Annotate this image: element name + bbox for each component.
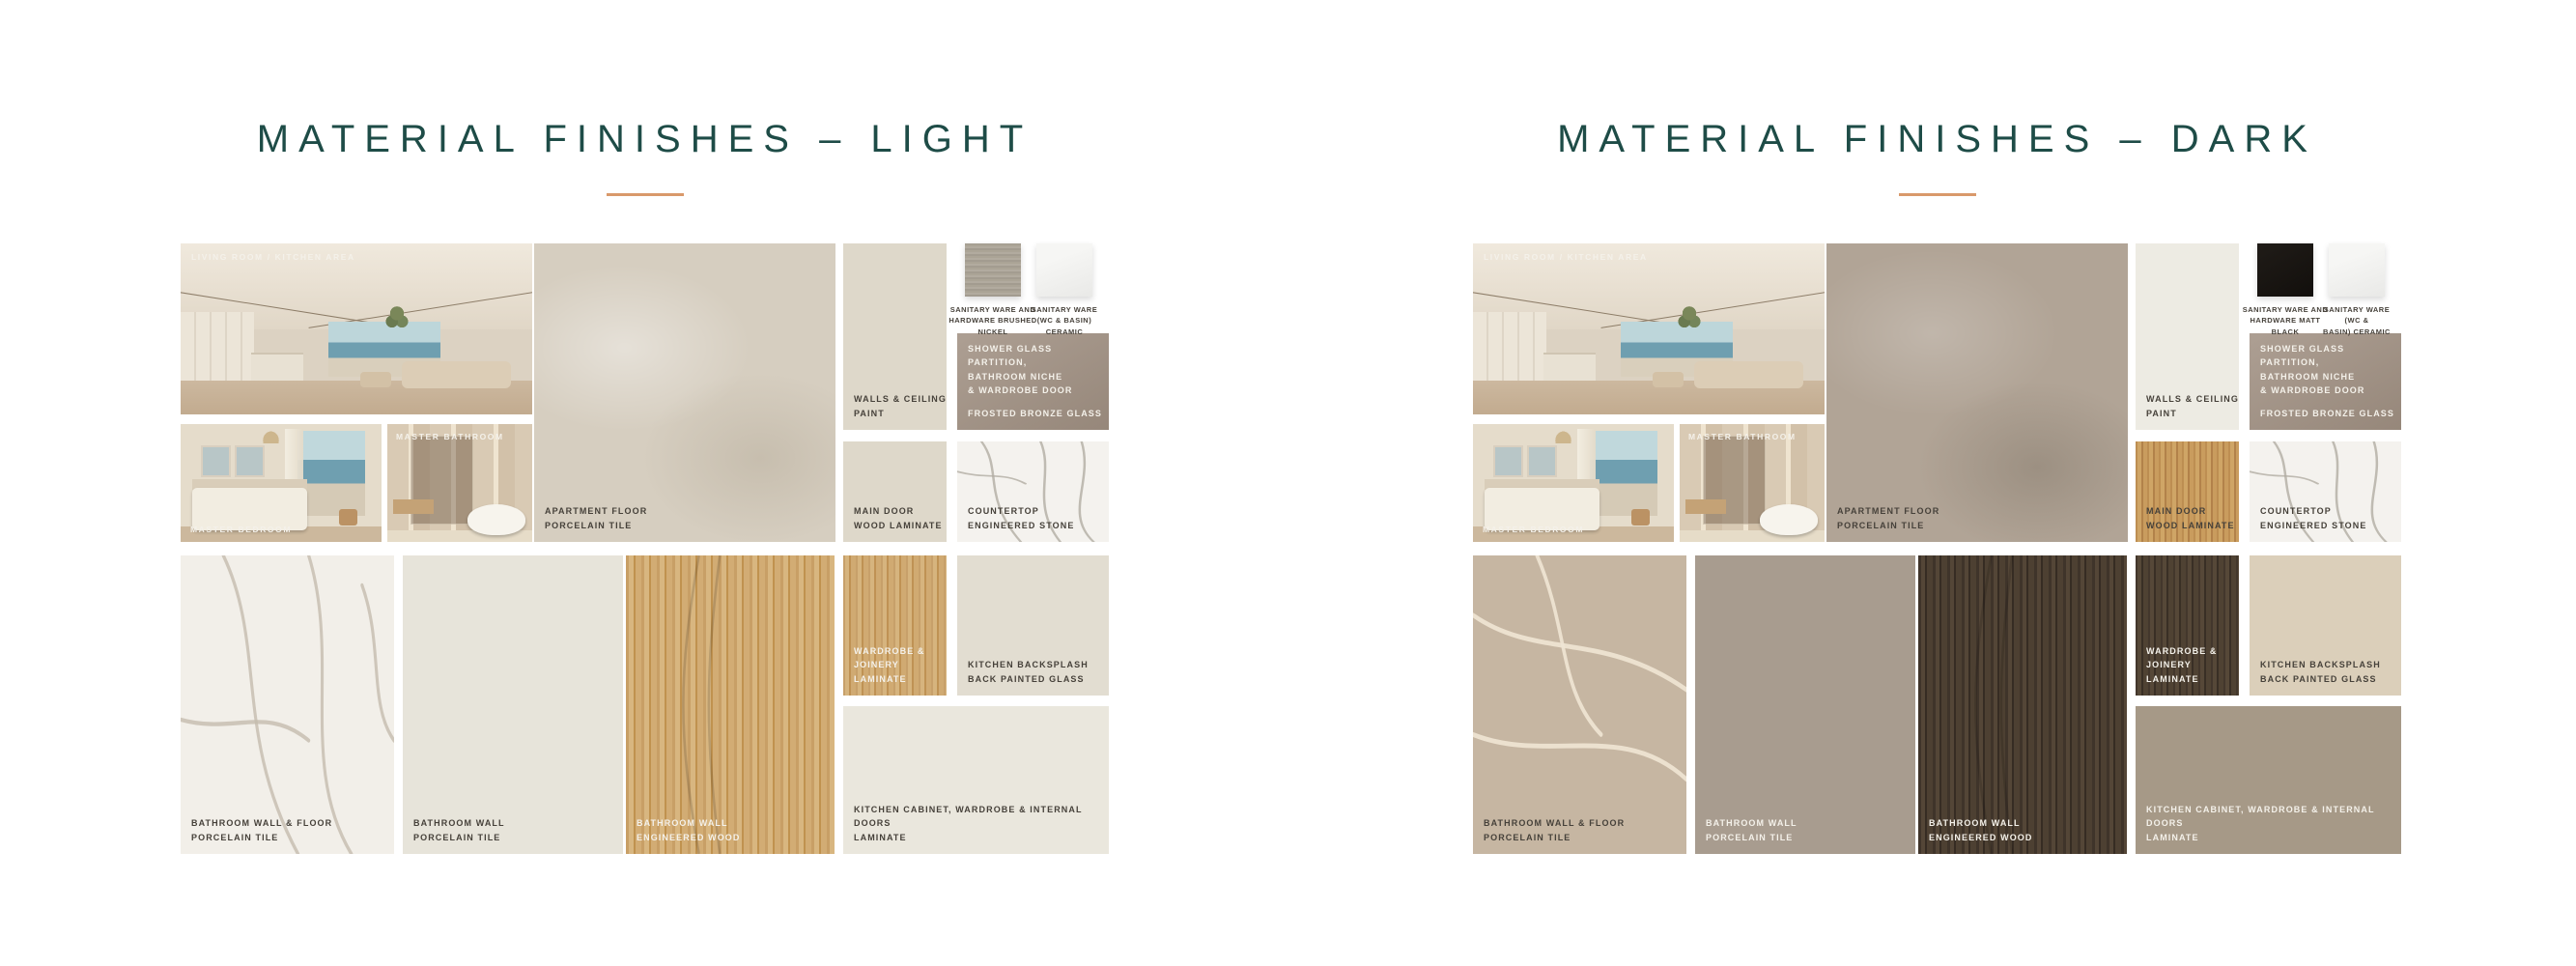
wood-grain	[1918, 555, 2127, 854]
swatch-bathroom-wall-porcelain: BATHROOM WALL PORCELAIN TILE	[403, 555, 623, 854]
swatch-bathroom-wall-porcelain: BATHROOM WALL PORCELAIN TILE	[1695, 555, 1915, 854]
board-material-finishes-dark: MATERIAL FINISHES – DARK LIVING ROOM / K…	[1473, 0, 2401, 966]
photo-plant	[384, 305, 409, 332]
swatch-label: KITCHEN BACKSPLASH BACK PAINTED GLASS	[968, 658, 1089, 686]
photo-pendant-lamp	[1553, 429, 1573, 443]
title-underline	[607, 193, 684, 196]
swatch-label: WALLS & CEILING PAINT	[2146, 392, 2239, 420]
photo-kitchen-island	[1543, 353, 1597, 381]
photo-bathtub	[467, 504, 525, 535]
swatch-label: BATHROOM WALL ENGINEERED WOOD	[637, 816, 741, 844]
swatch-sanitary-hardware-finish	[2257, 243, 2313, 297]
swatch-kitchen-cabinet-laminate: KITCHEN CABINET, WARDROBE & INTERNAL DOO…	[843, 706, 1109, 854]
living-room-caption: LIVING ROOM / KITCHEN AREA	[1484, 252, 1648, 262]
photo-sofa	[402, 361, 511, 388]
swatch-wardrobe-joinery-laminate: WARDROBE & JOINERY LAMINATE	[2136, 555, 2239, 696]
swatch-sanitary-hardware-label: SANITARY WARE AND HARDWARE MATT BLACK	[2240, 304, 2331, 337]
swatch-label: KITCHEN CABINET, WARDROBE & INTERNAL DOO…	[2146, 803, 2401, 844]
swatch-label: WALLS & CEILING PAINT	[854, 392, 947, 420]
swatch-label: MAIN DOOR WOOD LAMINATE	[2146, 504, 2235, 532]
swatch-usage-label: SHOWER GLASS PARTITION, BATHROOM NICHE &…	[2260, 342, 2401, 398]
swatch-bathroom-wall-floor-porcelain: BATHROOM WALL & FLOOR PORCELAIN TILE	[1473, 555, 1686, 854]
swatch-label: BATHROOM WALL PORCELAIN TILE	[1706, 816, 1798, 844]
photo-vanity	[1685, 499, 1726, 514]
swatch-sanitary-hardware-finish	[965, 243, 1021, 297]
swatch-label: KITCHEN BACKSPLASH BACK PAINTED GLASS	[2260, 658, 2381, 686]
swatch-label: BATHROOM WALL & FLOOR PORCELAIN TILE	[1484, 816, 1625, 844]
swatch-frosted-bronze-glass: SHOWER GLASS PARTITION, BATHROOM NICHE &…	[2250, 333, 2401, 430]
swatch-label: BATHROOM WALL PORCELAIN TILE	[413, 816, 505, 844]
board-material-finishes-light: MATERIAL FINISHES – LIGHT LIVING ROOM / …	[181, 0, 1109, 966]
swatch-walls-ceiling-paint: WALLS & CEILING PAINT	[843, 243, 947, 430]
living-room-photo: LIVING ROOM / KITCHEN AREA	[1473, 243, 1825, 414]
swatch-sanitary-ceramic	[1036, 243, 1092, 297]
photo-wall-art	[235, 445, 265, 477]
marble-veins	[1473, 555, 1686, 854]
board-title-dark: MATERIAL FINISHES – DARK	[1415, 118, 2459, 161]
swatch-walls-ceiling-paint: WALLS & CEILING PAINT	[2136, 243, 2239, 430]
photo-armchair	[360, 372, 392, 387]
swatch-bathroom-wall-engineered-wood: BATHROOM WALL ENGINEERED WOOD	[626, 555, 835, 854]
swatch-kitchen-cabinet-laminate: KITCHEN CABINET, WARDROBE & INTERNAL DOO…	[2136, 706, 2401, 854]
swatch-bathroom-wall-engineered-wood: BATHROOM WALL ENGINEERED WOOD	[1918, 555, 2127, 854]
master-bedroom-caption: MASTER BEDROOM	[190, 525, 292, 534]
photo-kitchen-island	[251, 353, 304, 381]
swatch-label: APARTMENT FLOOR PORCELAIN TILE	[1837, 504, 1939, 532]
photo-wall-art	[1493, 445, 1523, 477]
photo-vanity	[393, 499, 434, 514]
swatch-label: FROSTED BRONZE GLASS	[968, 407, 1102, 420]
swatch-kitchen-backsplash-glass: KITCHEN BACKSPLASH BACK PAINTED GLASS	[2250, 555, 2401, 696]
swatch-label: BATHROOM WALL ENGINEERED WOOD	[1929, 816, 2033, 844]
photo-sea-view-window	[297, 431, 366, 516]
swatch-bathroom-wall-floor-porcelain: BATHROOM WALL & FLOOR PORCELAIN TILE	[181, 555, 394, 854]
swatch-label: WARDROBE & JOINERY LAMINATE	[2146, 644, 2239, 686]
photo-kitchen-cabinets	[1473, 312, 1546, 384]
master-bathroom-photo: MASTER BATHROOM	[1680, 424, 1825, 542]
photo-sofa	[1694, 361, 1803, 388]
swatch-countertop-stone: COUNTERTOP ENGINEERED STONE	[957, 441, 1109, 542]
swatch-apartment-floor-porcelain: APARTMENT FLOOR PORCELAIN TILE	[534, 243, 835, 542]
wood-grain	[626, 555, 835, 854]
photo-armchair	[1653, 372, 1684, 387]
photo-pendant-lamp	[261, 429, 281, 443]
swatch-label: BATHROOM WALL & FLOOR PORCELAIN TILE	[191, 816, 332, 844]
photo-chair	[1631, 509, 1650, 526]
master-bedroom-photo: MASTER BEDROOM	[1473, 424, 1674, 542]
swatch-kitchen-backsplash-glass: KITCHEN BACKSPLASH BACK PAINTED GLASS	[957, 555, 1109, 696]
photo-bathtub	[1760, 504, 1818, 535]
swatch-label: APARTMENT FLOOR PORCELAIN TILE	[545, 504, 647, 532]
master-bathroom-caption: MASTER BATHROOM	[1688, 432, 1797, 441]
swatch-frosted-bronze-glass: SHOWER GLASS PARTITION, BATHROOM NICHE &…	[957, 333, 1109, 430]
photo-kitchen-cabinets	[181, 312, 254, 384]
master-bedroom-photo: MASTER BEDROOM	[181, 424, 382, 542]
swatch-main-door-laminate: MAIN DOOR WOOD LAMINATE	[843, 441, 947, 542]
swatch-apartment-floor-porcelain: APARTMENT FLOOR PORCELAIN TILE	[1826, 243, 2128, 542]
swatch-countertop-stone: COUNTERTOP ENGINEERED STONE	[2250, 441, 2401, 542]
material-collage-light: LIVING ROOM / KITCHEN AREA MASTER BEDROO…	[181, 243, 1109, 854]
swatch-label: WARDROBE & JOINERY LAMINATE	[854, 644, 947, 686]
swatch-label: KITCHEN CABINET, WARDROBE & INTERNAL DOO…	[854, 803, 1109, 844]
photo-plant	[1677, 305, 1701, 332]
board-title-light: MATERIAL FINISHES – LIGHT	[123, 118, 1167, 161]
swatch-wardrobe-joinery-laminate: WARDROBE & JOINERY LAMINATE	[843, 555, 947, 696]
photo-wall-art	[1527, 445, 1557, 477]
photo-chair	[339, 509, 357, 526]
material-collage-dark: LIVING ROOM / KITCHEN AREA MASTER BEDROO…	[1473, 243, 2401, 854]
swatch-label: MAIN DOOR WOOD LAMINATE	[854, 504, 943, 532]
photo-sea-view-window	[1590, 431, 1658, 516]
living-room-photo: LIVING ROOM / KITCHEN AREA	[181, 243, 532, 414]
master-bedroom-caption: MASTER BEDROOM	[1483, 525, 1584, 534]
swatch-label: COUNTERTOP ENGINEERED STONE	[2260, 504, 2366, 532]
master-bathroom-photo: MASTER BATHROOM	[387, 424, 532, 542]
title-underline	[1899, 193, 1976, 196]
swatch-sanitary-ceramic	[2329, 243, 2385, 297]
master-bathroom-caption: MASTER BATHROOM	[396, 432, 504, 441]
swatch-sanitary-ceramic-label: SANITARY WARE (WC & BASIN) CERAMIC	[2321, 304, 2392, 337]
swatch-sanitary-ceramic-label: SANITARY WARE (WC & BASIN) CERAMIC	[1029, 304, 1100, 337]
marble-veins	[181, 555, 394, 854]
swatch-main-door-laminate: MAIN DOOR WOOD LAMINATE	[2136, 441, 2239, 542]
swatch-label: FROSTED BRONZE GLASS	[2260, 407, 2394, 420]
photo-wall-art	[201, 445, 231, 477]
swatch-usage-label: SHOWER GLASS PARTITION, BATHROOM NICHE &…	[968, 342, 1109, 398]
swatch-sanitary-hardware-label: SANITARY WARE AND HARDWARE BRUSHED NICKE…	[948, 304, 1038, 337]
swatch-label: COUNTERTOP ENGINEERED STONE	[968, 504, 1074, 532]
living-room-caption: LIVING ROOM / KITCHEN AREA	[191, 252, 355, 262]
